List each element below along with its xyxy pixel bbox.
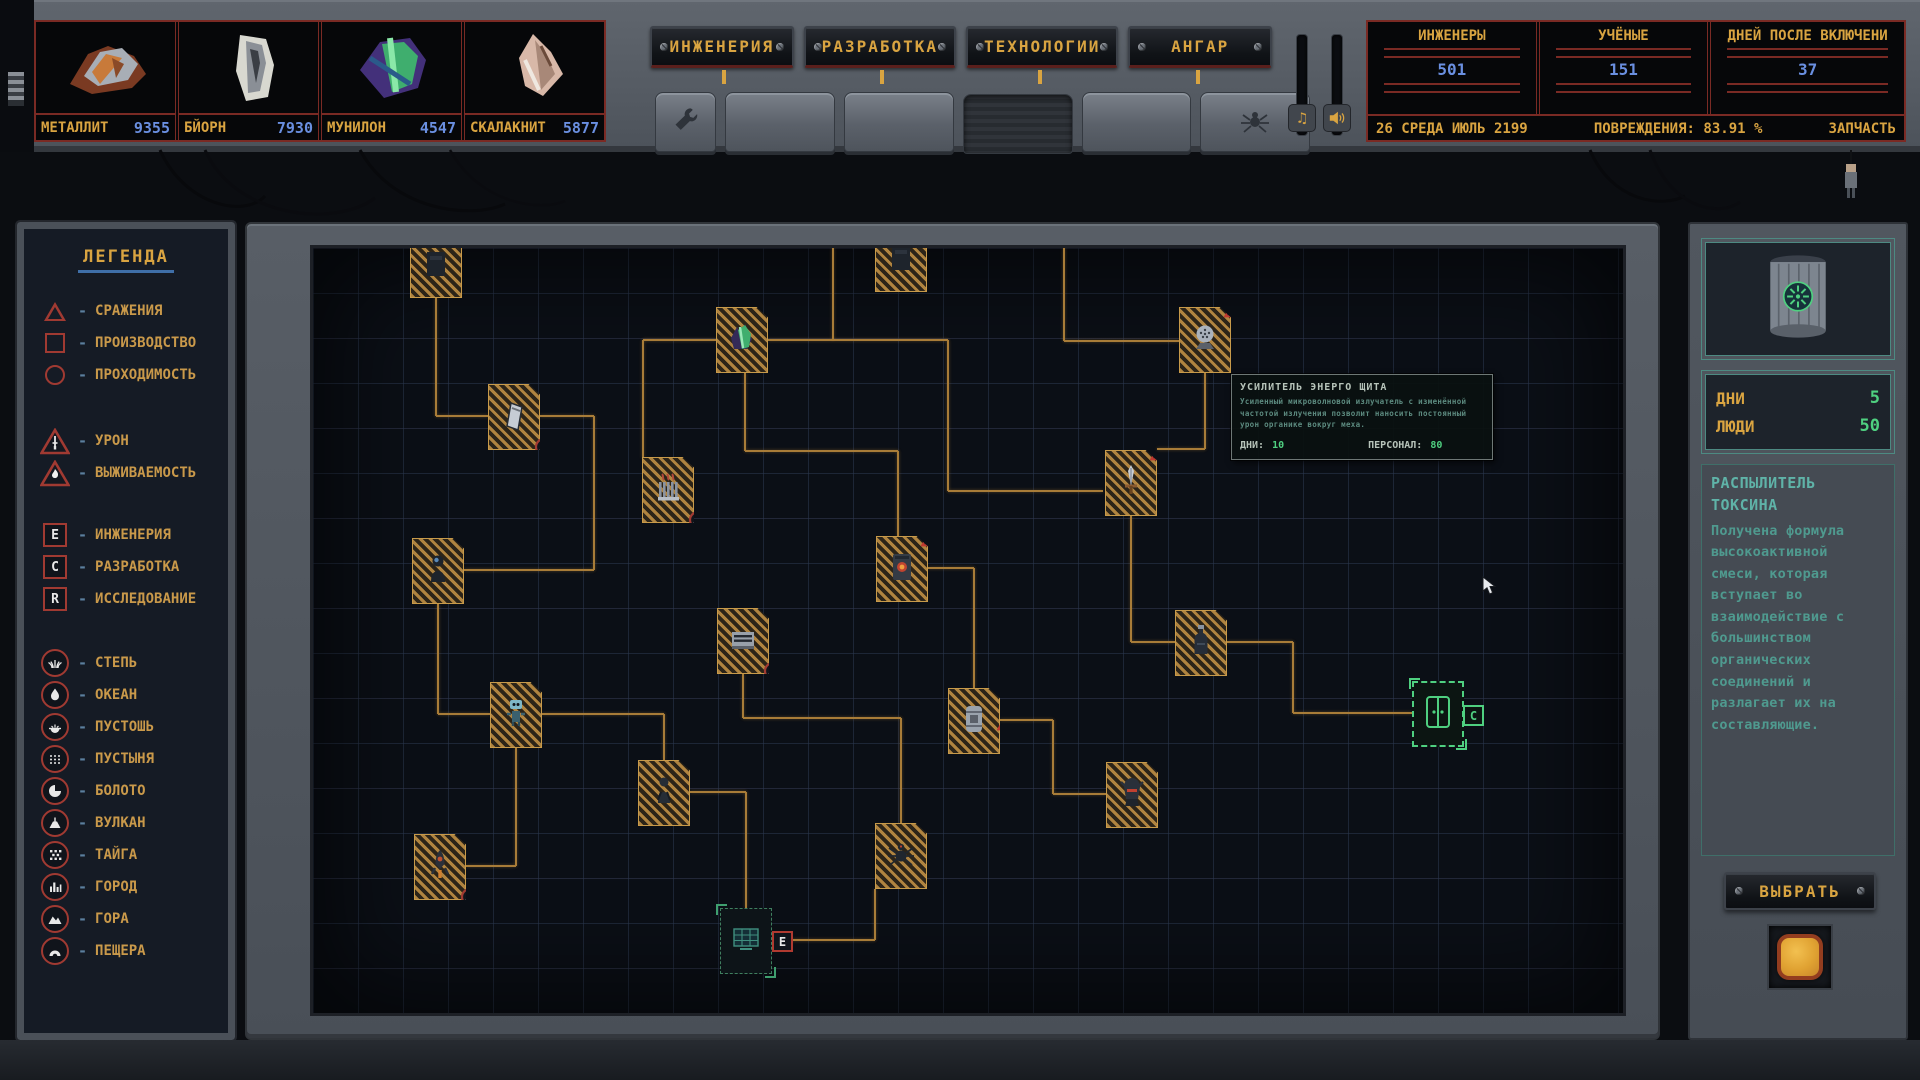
c-badge-icon: C	[1227, 633, 1248, 654]
speaker-icon[interactable]	[1323, 104, 1351, 132]
legend-dash: -	[78, 814, 87, 832]
resource-cell-бйорн: БЙОРН7930	[179, 22, 322, 140]
volcano-badge-icon	[534, 437, 554, 457]
tech-tree-map[interactable]: CCCEEECCC УСИЛИТЕЛЬ ЭНЕРГО ЩИТА Усиленны…	[310, 245, 1626, 1016]
resource-label-row: МЕТАЛЛИТ9355	[36, 113, 175, 140]
corner-bracket-icon	[765, 967, 776, 978]
sword-icon	[1116, 462, 1146, 504]
tech-connector	[897, 451, 899, 536]
tooltip-stats: ДНИ:10 ПЕРСОНАЛ:80	[1240, 440, 1484, 451]
corner-bracket-icon	[486, 678, 497, 689]
triangle-shape-icon	[40, 302, 70, 321]
legend-title: ЛЕГЕНДА	[32, 247, 220, 267]
spider-icon	[1240, 107, 1270, 137]
stat-divider	[1556, 48, 1692, 58]
ocean-icon	[40, 681, 70, 709]
square-shape-icon	[45, 333, 65, 353]
detail-stat-label: ДНИ	[1716, 389, 1745, 408]
tech-connector	[745, 450, 898, 452]
corner-bracket-icon	[761, 366, 772, 377]
node-barrel[interactable]	[948, 688, 1000, 754]
dome-icon	[1190, 319, 1220, 361]
resource-name: МУНИЛОН	[327, 120, 386, 136]
resource-name: СКАЛАКНИТ	[470, 120, 546, 136]
tech-connector	[1052, 720, 1054, 794]
swamp-icon	[41, 777, 69, 805]
astronaut-icon	[423, 550, 453, 592]
tech-connector	[742, 674, 744, 718]
module-icon	[886, 245, 916, 280]
volcano-icon	[41, 809, 69, 837]
flame-triangle-icon	[40, 460, 70, 487]
tech-connector	[663, 714, 665, 760]
hatch-icon	[499, 396, 529, 438]
tab-ангар[interactable]: АНГАР	[1128, 26, 1272, 68]
furnace-icon	[887, 548, 917, 590]
tech-connector	[437, 604, 439, 714]
toolbar-key-4[interactable]	[963, 94, 1073, 154]
legend-label: ПРОИЗВОДСТВО	[95, 335, 196, 351]
square-shape-icon	[40, 333, 70, 353]
stat-divider	[1384, 83, 1520, 93]
toolbar-key-5[interactable]	[1082, 92, 1192, 152]
detail-stat-row: ЛЮДИ50	[1716, 416, 1880, 436]
top-bar: МЕТАЛЛИТ9355БЙОРН7930МУНИЛОН4547СКАЛАКНИ…	[0, 0, 1920, 152]
legend-item: -СТЕПЬ	[32, 647, 220, 679]
c-badge-icon: C	[1158, 785, 1179, 806]
description-box: РАСПЫЛИТЕЛЬ ТОКСИНА Получена формула выс…	[1701, 464, 1895, 856]
legend-letter-group: E-ИНЖЕНЕРИЯC-РАЗРАБОТКАR-ИССЛЕДОВАНИЕ	[32, 519, 220, 615]
tech-connector	[947, 340, 949, 491]
tech-connector	[1131, 641, 1175, 643]
toolbar-key-wrench-icon[interactable]	[655, 92, 716, 152]
spare-parts-text: ЗАПЧАСТЬ	[1829, 121, 1896, 137]
node-hatch[interactable]	[488, 384, 540, 450]
c-badge-icon: C	[464, 561, 485, 582]
legend-label: ИНЖЕНЕРИЯ	[95, 527, 171, 543]
corner-bracket-icon	[1102, 758, 1113, 769]
legend-dash: -	[78, 654, 87, 672]
steppe-icon	[41, 649, 69, 677]
legend-dash: -	[78, 846, 87, 864]
cave-icon	[41, 937, 69, 965]
node-furnace[interactable]	[876, 536, 928, 602]
legend-label: ОКЕАН	[95, 687, 137, 703]
corner-bracket-icon	[716, 904, 727, 915]
stat-divider	[1727, 83, 1888, 93]
resource-cell-металлит: МЕТАЛЛИТ9355	[36, 22, 179, 140]
date-text: 26 СРЕДА ИЮЛЬ 2199	[1376, 121, 1528, 137]
legend-item: -ПУСТОШЬ	[32, 711, 220, 743]
legend-item: -ТАЙГА	[32, 839, 220, 871]
node-shield-dome[interactable]	[1179, 307, 1231, 373]
tech-connector	[1227, 641, 1293, 643]
screw-icon	[1138, 43, 1146, 51]
corner-bracket-icon	[1171, 606, 1182, 617]
corner-bracket-icon	[455, 291, 466, 302]
screw-icon	[1735, 887, 1743, 895]
volcano-badge-icon	[688, 510, 708, 530]
armor-icon	[1117, 774, 1147, 816]
letter-badge-C: C	[43, 555, 67, 579]
tech-connector	[1293, 712, 1412, 714]
corner-bracket-icon	[410, 830, 421, 841]
legend-dash: -	[78, 366, 87, 384]
tooltip-title: УСИЛИТЕЛЬ ЭНЕРГО ЩИТА	[1240, 382, 1484, 393]
desert-icon	[41, 745, 69, 773]
tech-connector	[435, 278, 437, 416]
item-description: Получена формула высокоактивной смеси, к…	[1711, 521, 1885, 737]
resource-value: 4547	[420, 119, 456, 137]
tech-connector	[1204, 373, 1206, 449]
hanging-figure-decoration	[1840, 150, 1862, 214]
tooltip-body: Усиленный микроволновой излучатель с изм…	[1240, 396, 1484, 431]
legend-dash: -	[78, 686, 87, 704]
robot-icon	[501, 694, 531, 736]
corner-bracket-icon	[921, 595, 932, 606]
legend-label: ИССЛЕДОВАНИЕ	[95, 591, 196, 607]
city-icon	[41, 873, 69, 901]
tech-connector	[832, 248, 834, 340]
taiga-icon	[40, 841, 70, 869]
stat-header: ДНЕЙ ПОСЛЕ ВКЛЮЧЕНИ	[1711, 28, 1904, 44]
legend-label: ПУСТОШЬ	[95, 719, 154, 735]
toolbar-keys	[655, 92, 1310, 152]
legend-dash: -	[78, 878, 87, 896]
tab-row: ИНЖЕНЕРИЯРАЗРАБОТКАТЕХНОЛОГИИАНГАР	[650, 26, 1272, 68]
resource-label-row: МУНИЛОН4547	[322, 113, 461, 140]
stats-columns: ИНЖЕНЕРЫ501УЧЁНЫЕ151ДНЕЙ ПОСЛЕ ВКЛЮЧЕНИ3…	[1368, 22, 1904, 114]
mouse-cursor-icon	[1482, 576, 1498, 596]
stats-panel: ИНЖЕНЕРЫ501УЧЁНЫЕ151ДНЕЙ ПОСЛЕ ВКЛЮЧЕНИ3…	[1366, 20, 1906, 142]
legend-item: -ПРОХОДИМОСТЬ	[32, 359, 220, 391]
node-spider-drone[interactable]: E	[875, 823, 927, 889]
metallit-ore-icon	[36, 22, 175, 113]
corner-bracket-icon	[1151, 821, 1162, 832]
worker-icon	[649, 772, 679, 814]
letter-badge-R: R	[43, 587, 67, 611]
legend-label: ВУЛКАН	[95, 815, 146, 831]
legend-title-underline	[78, 270, 174, 273]
tab-разработка[interactable]: РАЗРАБОТКА	[804, 26, 956, 68]
detail-stat-value: 50	[1860, 416, 1880, 436]
tech-tooltip: УСИЛИТЕЛЬ ЭНЕРГО ЩИТА Усиленный микровол…	[1231, 374, 1493, 460]
legend-item: -ВЫЖИВАЕМОСТЬ	[32, 457, 220, 489]
resource-cell-мунилон: МУНИЛОН4547	[322, 22, 465, 140]
bjorn-ore-icon	[179, 22, 318, 113]
node-robot[interactable]: C	[490, 682, 542, 748]
legend-dash: -	[78, 910, 87, 928]
corner-bracket-icon	[871, 819, 882, 830]
legend-item: R-ИССЛЕДОВАНИЕ	[32, 583, 220, 615]
desert-icon	[40, 745, 70, 773]
cave-icon	[40, 937, 70, 965]
tech-connector	[436, 415, 488, 417]
tab-tick-slot	[966, 70, 1114, 86]
wasteland-icon	[40, 713, 70, 741]
node-armor[interactable]: C	[1106, 762, 1158, 828]
tab-tick	[880, 70, 884, 84]
solar-icon	[730, 920, 762, 962]
screw-icon	[976, 43, 984, 51]
tech-connector	[1063, 248, 1065, 341]
tech-connector	[438, 713, 490, 715]
damage-text: ПОВРЕЖДЕНИЯ: 83.91 %	[1594, 121, 1763, 137]
tech-connector	[1130, 516, 1132, 642]
tab-tick	[722, 70, 726, 84]
node-worker[interactable]: E	[638, 760, 690, 826]
tab-label: ИНЖЕНЕРИЯ	[668, 37, 776, 56]
circle-shape-icon	[45, 365, 65, 385]
corner-bracket-icon	[535, 741, 546, 752]
tech-connector	[768, 339, 948, 341]
legend-dash: -	[78, 334, 87, 352]
e-badge-icon: E	[690, 783, 711, 804]
detail-stats-box: ДНИ5ЛЮДИ50	[1701, 370, 1895, 454]
corner-bracket-icon	[634, 756, 645, 767]
legend-label: СРАЖЕНИЯ	[95, 303, 162, 319]
node-sword[interactable]	[1105, 450, 1157, 516]
item-title: РАСПЫЛИТЕЛЬ ТОКСИНА	[1711, 473, 1885, 517]
top-left-notch	[0, 0, 34, 152]
legend-label: РАЗРАБОТКА	[95, 559, 179, 575]
tech-connector	[464, 569, 594, 571]
legend-item: -УРОН	[32, 425, 220, 457]
select-button[interactable]: ВЫБРАТЬ	[1724, 872, 1876, 910]
node-server[interactable]	[717, 608, 769, 674]
legend-label: БОЛОТО	[95, 783, 146, 799]
item-preview-box	[1701, 238, 1895, 360]
warning-mid-badge-icon	[997, 711, 1019, 731]
tab-tick-slot	[650, 70, 798, 86]
resource-value: 9355	[134, 119, 170, 137]
tab-инженерия[interactable]: ИНЖЕНЕРИЯ	[650, 26, 794, 68]
warning-badge-icon	[921, 527, 943, 547]
toolbar-key-3[interactable]	[844, 92, 954, 152]
sword-triangle-icon	[40, 428, 70, 455]
corner-bracket-icon	[920, 882, 931, 893]
corner-bracket-icon	[1101, 446, 1112, 457]
crystal-icon	[727, 319, 757, 361]
tech-connector	[973, 568, 975, 688]
tech-connector	[1000, 719, 1053, 721]
stat-divider	[1556, 83, 1692, 93]
detail-stat-value: 5	[1870, 388, 1880, 408]
city-icon	[40, 873, 70, 901]
corner-bracket-icon	[484, 380, 495, 391]
letter-badge-C: C	[40, 555, 70, 579]
node-crystal[interactable]: C	[716, 307, 768, 373]
legend-label: ГОРОД	[95, 879, 137, 895]
resource-name: МЕТАЛЛИТ	[41, 120, 108, 136]
corner-bracket-icon	[920, 285, 931, 296]
screw-icon	[776, 43, 784, 51]
screw-icon	[938, 43, 946, 51]
resource-panel: МЕТАЛЛИТ9355БЙОРН7930МУНИЛОН4547СКАЛАКНИ…	[34, 20, 606, 142]
mountain-icon	[41, 905, 69, 933]
legend-shape-group: -СРАЖЕНИЯ-ПРОИЗВОДСТВО-ПРОХОДИМОСТЬ	[32, 295, 220, 391]
resource-value: 5877	[563, 119, 599, 137]
legend-item: -ОКЕАН	[32, 679, 220, 711]
resource-cell-скалакнит: СКАЛАКНИТ5877	[465, 22, 604, 140]
bottle-icon	[1186, 622, 1216, 664]
node-door-selected[interactable]: C	[1412, 681, 1464, 747]
legend-label: ТАЙГА	[95, 847, 137, 863]
corner-bracket-icon	[944, 684, 955, 695]
corner-bracket-icon	[1409, 678, 1420, 689]
e-badge-icon: E	[927, 846, 948, 867]
legend-dash: -	[78, 718, 87, 736]
legend-item: -ГОРОД	[32, 871, 220, 903]
detail-panel: ДНИ5ЛЮДИ50 РАСПЫЛИТЕЛЬ ТОКСИНА Получена …	[1688, 222, 1908, 1040]
resource-label-row: СКАЛАКНИТ5877	[465, 113, 604, 140]
legend-dash: -	[78, 782, 87, 800]
module-icon	[421, 245, 451, 286]
skalaknit-shard-icon	[465, 22, 604, 113]
corner-bracket-icon	[713, 604, 724, 615]
tech-connector	[515, 748, 517, 866]
legend-biome-group: -СТЕПЬ-ОКЕАН-ПУСТОШЬ-ПУСТЫНЯ-БОЛОТО-ВУЛК…	[32, 647, 220, 967]
tech-connector	[1157, 448, 1205, 450]
tech-connector	[1292, 642, 1294, 713]
node-top-module-2[interactable]	[875, 245, 927, 292]
legend-item: -ПУСТЫНЯ	[32, 743, 220, 775]
stat-value: 37	[1711, 60, 1904, 79]
tab-label: ТЕХНОЛОГИИ	[984, 37, 1100, 56]
legend-label: ВЫЖИВАЕМОСТЬ	[95, 465, 196, 481]
stat-value: 501	[1368, 60, 1536, 79]
tech-connector	[744, 373, 746, 451]
stat-header: УЧЁНЫЕ	[1540, 28, 1708, 44]
legend-label: ПУСТЫНЯ	[95, 751, 154, 767]
game-screen: МЕТАЛЛИТ9355БЙОРН7930МУНИЛОН4547СКАЛАКНИ…	[0, 0, 1920, 1080]
stat-header: ИНЖЕНЕРЫ	[1368, 28, 1536, 44]
legend-dash: -	[78, 302, 87, 320]
tech-connector	[466, 865, 516, 867]
resource-label-row: БЙОРН7930	[179, 113, 318, 140]
stat-divider	[1727, 48, 1888, 58]
tech-connector	[948, 490, 1103, 492]
corner-bracket-icon	[683, 819, 694, 830]
corner-bracket-icon	[1220, 669, 1231, 680]
bottom-strip	[0, 1040, 1920, 1080]
barrel-icon	[959, 700, 989, 742]
legend-label: ГОРА	[95, 911, 129, 927]
tab-tick	[1196, 70, 1200, 84]
volcano-badge-icon	[460, 887, 480, 907]
munilon-crystal-icon	[322, 22, 461, 113]
stat-divider	[1384, 48, 1520, 58]
triangle-shape-icon	[44, 302, 66, 321]
tech-connector	[1053, 793, 1106, 795]
node-top-module-1[interactable]	[410, 245, 462, 298]
detail-stat-label: ЛЮДИ	[1716, 417, 1755, 436]
e-badge-icon: E	[772, 931, 793, 952]
legend-item: -БОЛОТО	[32, 775, 220, 807]
node-astronaut[interactable]: C	[412, 538, 464, 604]
vent-decoration-icon	[8, 72, 24, 106]
warning-badge-icon	[1224, 298, 1246, 318]
legend-item: -ГОРА	[32, 903, 220, 935]
corner-bracket-icon	[993, 747, 1004, 758]
legend-label: ПЕЩЕРА	[95, 943, 146, 959]
legend-label: СТЕПЬ	[95, 655, 137, 671]
tech-connector	[928, 567, 974, 569]
tab-label: АНГАР	[1146, 37, 1254, 56]
music-note-icon[interactable]: ♫	[1288, 104, 1316, 132]
steppe-icon	[40, 649, 70, 677]
screw-icon	[660, 43, 668, 51]
legend-dash: -	[78, 750, 87, 768]
tab-технологии[interactable]: ТЕХНОЛОГИИ	[966, 26, 1118, 68]
corner-bracket-icon	[408, 534, 419, 545]
circle-shape-icon	[40, 365, 70, 385]
node-radiator[interactable]	[642, 457, 694, 523]
screw-icon	[814, 43, 822, 51]
tech-connector	[743, 717, 901, 719]
stat-col: ИНЖЕНЕРЫ501	[1368, 22, 1540, 114]
wrench-icon	[672, 106, 700, 138]
legend-item: -СРАЖЕНИЯ	[32, 295, 220, 327]
letter-badge-E: E	[43, 523, 67, 547]
letter-badge-E: E	[40, 523, 70, 547]
legend-alert-group: -УРОН-ВЫЖИВАЕМОСТЬ	[32, 425, 220, 489]
status-line: 26 СРЕДА ИЮЛЬ 2199 ПОВРЕЖДЕНИЯ: 83.91 % …	[1368, 114, 1904, 142]
toxin-canister-icon	[1705, 242, 1891, 356]
tab-tick	[1038, 70, 1042, 84]
corner-bracket-icon	[1456, 739, 1467, 750]
radiator-icon	[653, 469, 683, 511]
tech-connector	[643, 339, 716, 341]
legend-label: ПРОХОДИМОСТЬ	[95, 367, 196, 383]
door-icon	[1422, 693, 1454, 735]
letter-badge-R: R	[40, 587, 70, 611]
detail-stat-row: ДНИ5	[1716, 388, 1880, 408]
c-badge-icon: C	[542, 705, 563, 726]
corner-bracket-icon	[872, 532, 883, 543]
rocket-icon	[425, 846, 455, 888]
tech-connector	[745, 792, 747, 908]
volcano-badge-icon	[763, 661, 783, 681]
node-solar-panel[interactable]: E	[720, 908, 772, 974]
wasteland-icon	[41, 713, 69, 741]
tech-connector	[542, 713, 664, 715]
node-rocket[interactable]	[414, 834, 466, 900]
tech-connector	[900, 718, 902, 823]
legend-dash: -	[78, 432, 87, 450]
legend-dash: -	[78, 942, 87, 960]
confirm-button-frame	[1767, 924, 1833, 990]
confirm-button[interactable]	[1777, 934, 1823, 980]
toolbar-key-2[interactable]	[725, 92, 835, 152]
tech-connector	[690, 791, 746, 793]
corner-bracket-icon	[457, 597, 468, 608]
stat-value: 151	[1540, 60, 1708, 79]
legend-dash: -	[78, 464, 87, 482]
warning-badge-icon	[1150, 441, 1172, 461]
tab-tick-slot	[808, 70, 956, 86]
node-toxin-bottle[interactable]: C	[1175, 610, 1227, 676]
server-icon	[728, 620, 758, 662]
screw-icon	[1100, 43, 1108, 51]
tech-connector	[593, 416, 595, 570]
legend-dash: -	[78, 558, 87, 576]
swamp-icon	[40, 777, 70, 805]
corner-bracket-icon	[1175, 303, 1186, 314]
volcano-icon	[40, 809, 70, 837]
tab-tick-row	[650, 70, 1272, 86]
legend-dash: -	[78, 526, 87, 544]
